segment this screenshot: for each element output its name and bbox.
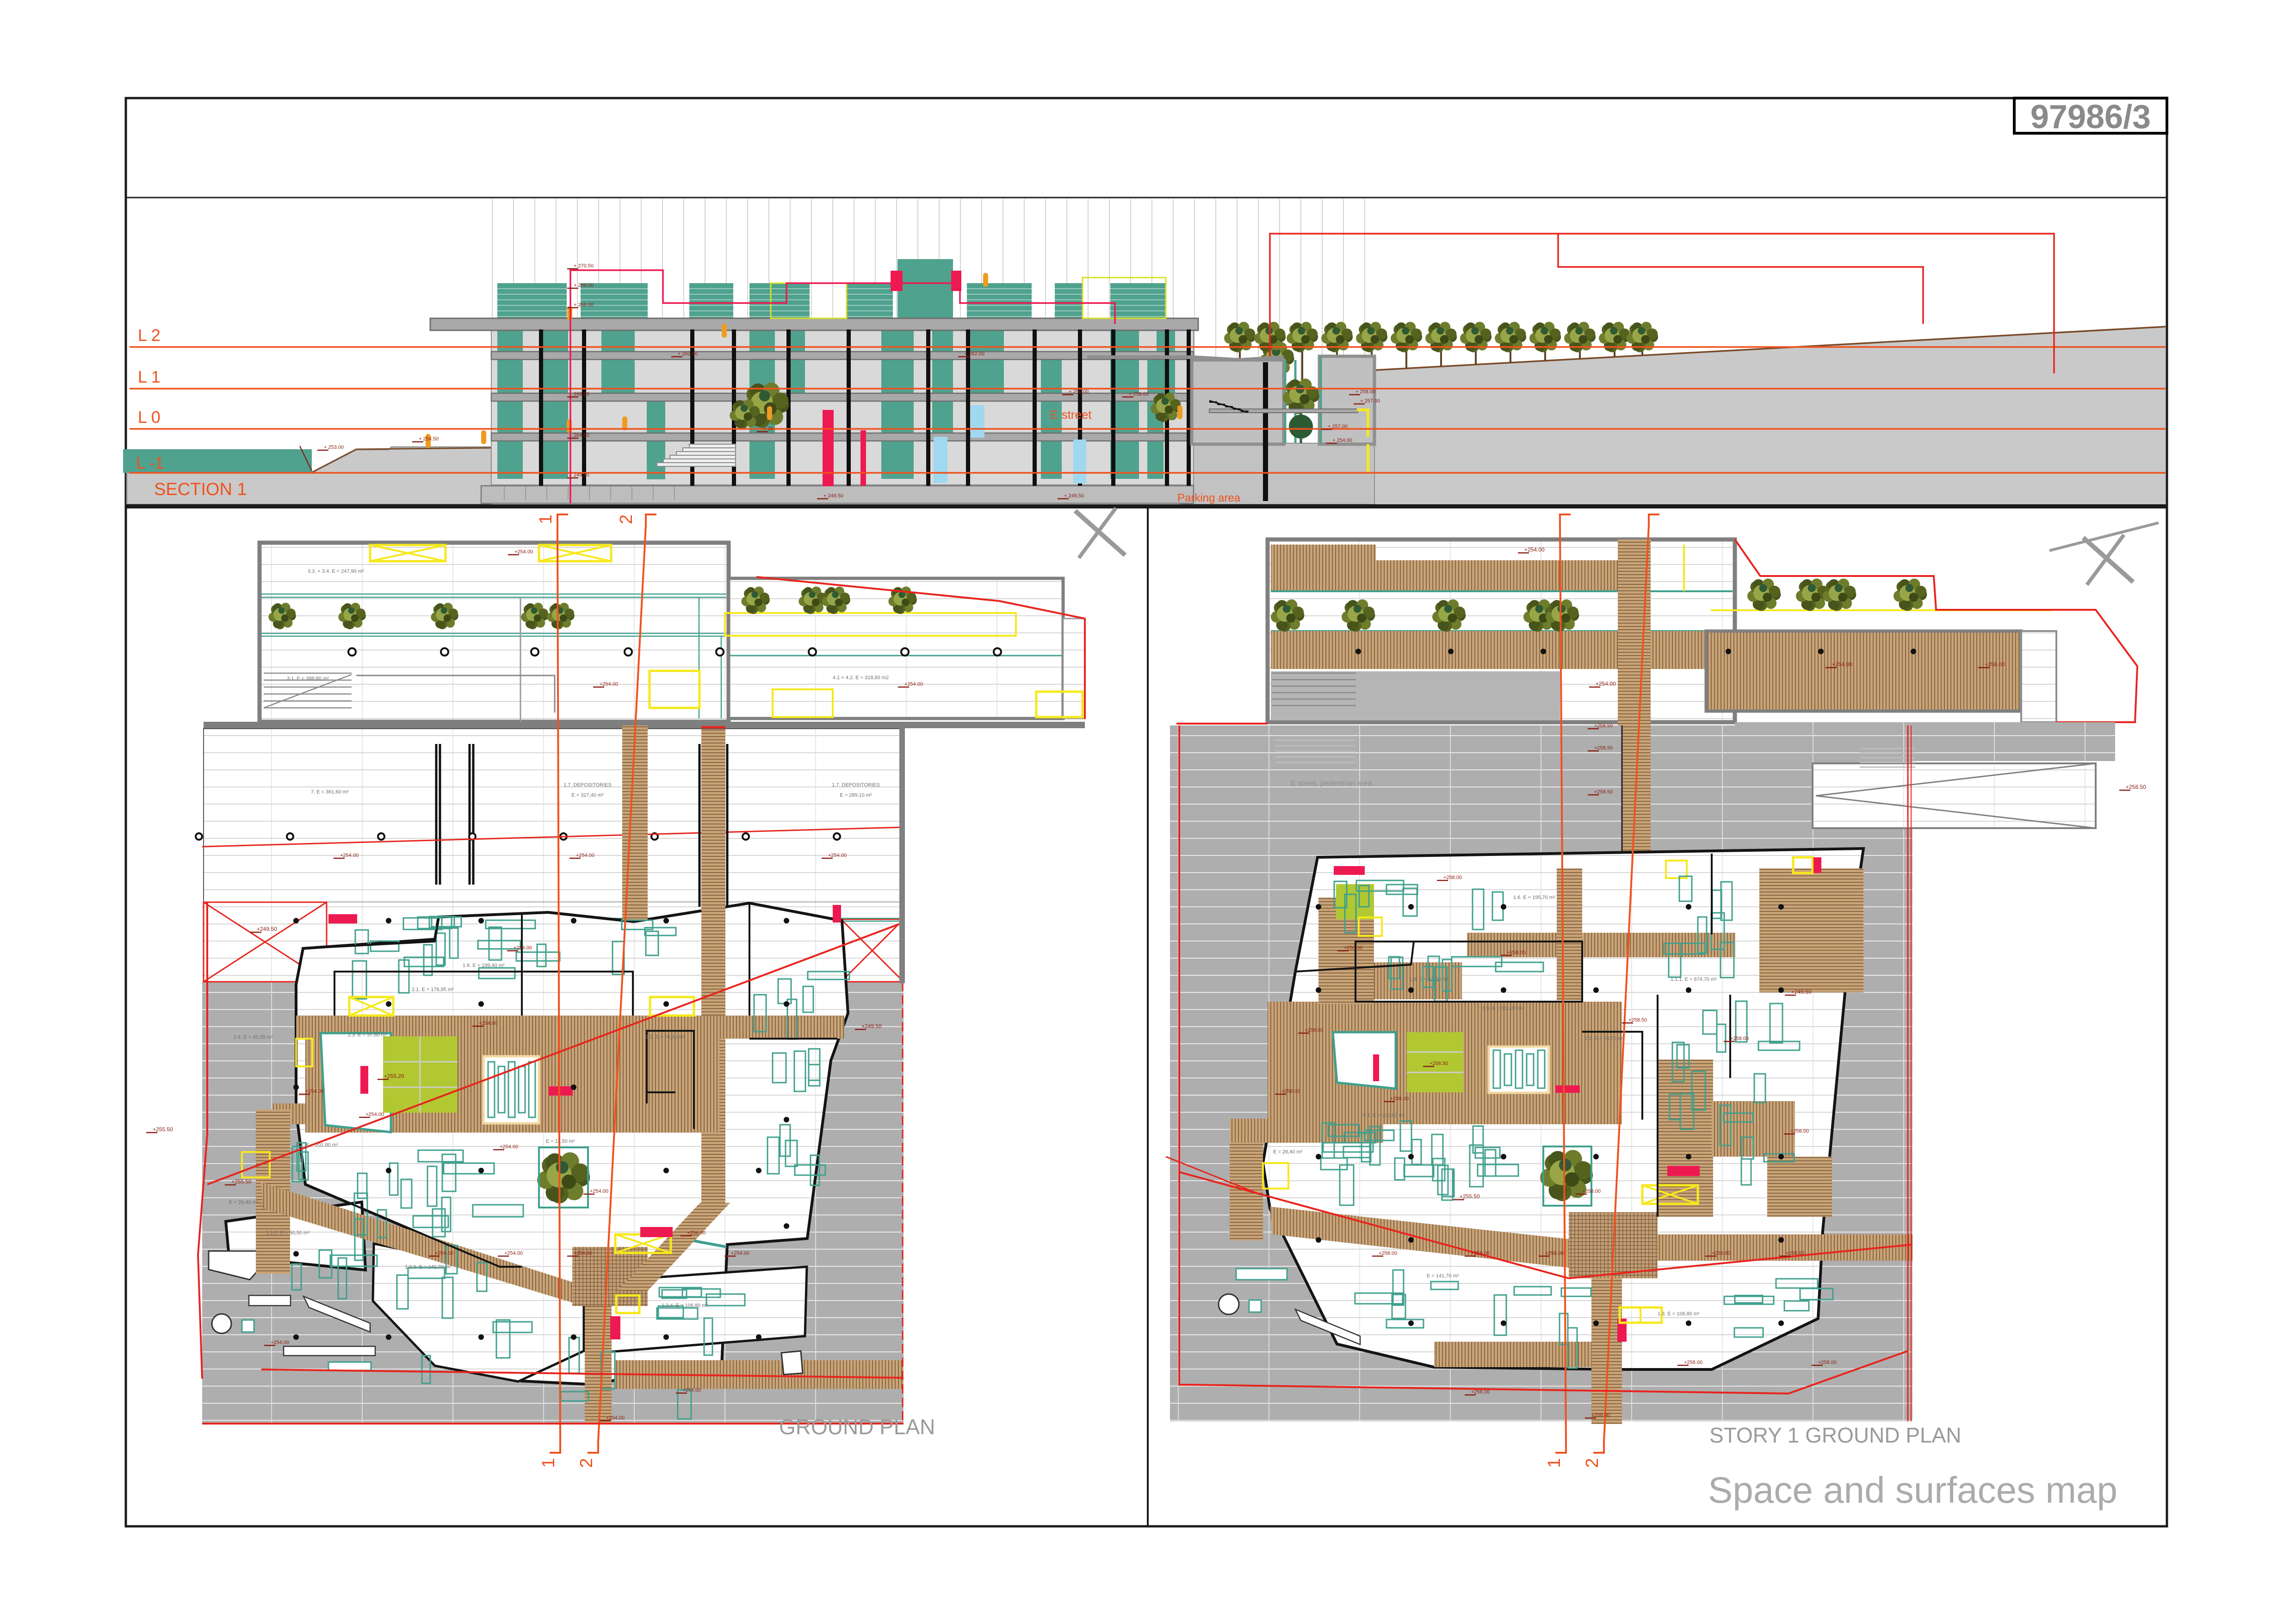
- svg-text:1.6. E = 199,40 m²: 1.6. E = 199,40 m²: [463, 963, 505, 968]
- svg-text:5.2. E = 201.80 m²: 5.2. E = 201.80 m²: [296, 1142, 338, 1148]
- svg-text:+249.50: +249.50: [861, 1023, 882, 1029]
- svg-text:2: 2: [577, 1458, 596, 1468]
- svg-text:1: 1: [536, 514, 556, 524]
- svg-text:+258.00: +258.00: [1591, 1412, 1610, 1418]
- svg-text:3.3. + 3.4. E = 247,90 m²: 3.3. + 3.4. E = 247,90 m²: [308, 569, 364, 574]
- svg-text:+258.00: +258.00: [1684, 1360, 1702, 1365]
- svg-text:1.2.3. E = 141,70 m²: 1.2.3. E = 141,70 m²: [405, 1264, 451, 1270]
- svg-text:+ 262.00: + 262.00: [965, 351, 984, 357]
- svg-text:+258.50: +258.50: [2126, 784, 2146, 790]
- svg-text:+ 268.00: + 268.00: [574, 302, 594, 308]
- svg-text:+258.00: +258.00: [1443, 875, 1462, 880]
- svg-text:+258.00: +258.00: [1582, 1189, 1601, 1194]
- svg-text:1.6. E = 195,70 m²: 1.6. E = 195,70 m²: [1513, 895, 1555, 900]
- svg-text:+254.00: +254.00: [606, 1415, 625, 1421]
- svg-text:E = 289,10 m²: E = 289,10 m²: [840, 793, 872, 798]
- svg-text:1.9. E = 57,60 m²: 1.9. E = 57,60 m²: [1409, 977, 1448, 982]
- svg-text:+258.00: +258.00: [1790, 1128, 1809, 1134]
- svg-text:+254.00: +254.00: [340, 853, 359, 858]
- svg-text:+255.50: +255.50: [231, 1178, 252, 1185]
- svg-text:+ 253.00: + 253.00: [324, 445, 344, 450]
- svg-text:+254.00: +254.00: [365, 1112, 384, 1117]
- svg-text:2.2. E = 76,30 m²: 2.2. E = 76,30 m²: [645, 1035, 685, 1040]
- svg-text:+258.00: +258.00: [1712, 1251, 1730, 1256]
- svg-text:1.7. DEPOSITORIES: 1.7. DEPOSITORIES: [832, 782, 880, 788]
- svg-text:7. E = 361,60 m²: 7. E = 361,60 m²: [311, 789, 349, 795]
- svg-text:1.3. E = 106,80 m²: 1.3. E = 106,80 m²: [1658, 1311, 1700, 1317]
- svg-text:+258.00: +258.00: [1507, 950, 1526, 955]
- svg-text:+254.00: +254.00: [504, 1251, 523, 1256]
- svg-text:5.3. E = 201.80 m²: 5.3. E = 201.80 m²: [1363, 1113, 1405, 1118]
- svg-text:+258.00: +258.00: [1730, 1036, 1749, 1041]
- svg-text:2.1. E = 176,95 m²: 2.1. E = 176,95 m²: [412, 987, 454, 992]
- svg-text:+ 262.00: + 262.00: [678, 351, 698, 357]
- svg-text:+258.00: +258.00: [1379, 1251, 1397, 1256]
- svg-text:L 2: L 2: [138, 326, 161, 345]
- svg-text:+254.00: +254.00: [500, 1144, 518, 1150]
- svg-text:+249.50: +249.50: [1791, 989, 1812, 995]
- svg-text:1.1.1. E = 674,70 m²: 1.1.1. E = 674,70 m²: [1671, 977, 1717, 982]
- svg-text:+255.50: +255.50: [1460, 1193, 1480, 1200]
- svg-text:1.7. DEPOSITORIES: 1.7. DEPOSITORIES: [563, 782, 612, 788]
- svg-text:+258.00: +258.00: [1471, 1389, 1490, 1395]
- svg-text:SECTION 1: SECTION 1: [154, 480, 247, 499]
- svg-text:+258.50: +258.50: [1594, 745, 1613, 751]
- svg-text:+254.00: +254.00: [1832, 661, 1852, 668]
- svg-text:Parking area: Parking area: [1177, 492, 1241, 504]
- svg-text:+254.00: +254.00: [271, 1340, 289, 1345]
- svg-text:+254.00: +254.00: [682, 1388, 701, 1393]
- svg-text:1.9. E = 111,40 m²: 1.9. E = 111,40 m²: [1482, 1006, 1524, 1011]
- svg-text:+254.00: +254.00: [574, 1251, 592, 1256]
- svg-text:+254.00: +254.00: [479, 1021, 497, 1026]
- svg-text:E = 28,40 m²: E = 28,40 m²: [229, 1200, 259, 1205]
- svg-text:+254.00: +254.00: [1596, 681, 1616, 687]
- svg-text:+258.00: +258.00: [1305, 1028, 1323, 1033]
- svg-text:+ 257.00: + 257.00: [1360, 398, 1380, 404]
- svg-text:+258.50: +258.50: [1594, 789, 1613, 795]
- svg-text:97986/3: 97986/3: [2030, 99, 2151, 136]
- svg-text:+254.00: +254.00: [828, 853, 847, 858]
- svg-text:+255.50: +255.50: [153, 1126, 173, 1133]
- svg-text:+258.00: +258.00: [1471, 1251, 1490, 1256]
- svg-text:+258.00: +258.00: [1281, 1089, 1300, 1094]
- svg-text:249.50: 249.50: [574, 472, 589, 478]
- svg-text:+254.00: +254.00: [305, 1089, 324, 1094]
- svg-text:+258.50: +258.50: [1430, 1061, 1448, 1066]
- svg-text:+254.00: +254.00: [514, 549, 533, 555]
- svg-text:+ 270.50: + 270.50: [574, 263, 594, 269]
- svg-text:STORY 1 GROUND PLAN: STORY 1 GROUND PLAN: [1709, 1423, 1962, 1447]
- svg-text:E street, pedestrian area: E street, pedestrian area: [1291, 780, 1372, 787]
- svg-text:2.4. E = 42,35 m²: 2.4. E = 42,35 m²: [234, 1035, 273, 1040]
- svg-text:+258.00: +258.00: [1545, 1251, 1564, 1256]
- svg-text:+258.00: +258.00: [1786, 1251, 1804, 1256]
- svg-text:E = 28,40 m²: E = 28,40 m²: [1273, 1149, 1303, 1155]
- svg-text:E street: E street: [1050, 408, 1092, 421]
- svg-text:E = 11,50 m²: E = 11,50 m²: [546, 1139, 575, 1144]
- svg-text:+ 254.00: + 254.00: [1332, 438, 1352, 443]
- svg-text:+ 25: + 25: [763, 426, 774, 432]
- svg-text:+ 258.00: + 258.00: [1129, 391, 1149, 397]
- svg-text:GROUND PLAN: GROUND PLAN: [779, 1415, 935, 1439]
- svg-text:1: 1: [1545, 1458, 1564, 1468]
- svg-text:1: 1: [539, 1458, 558, 1468]
- svg-text:+254.00: +254.00: [1524, 546, 1545, 553]
- svg-text:L -1: L -1: [136, 453, 164, 472]
- svg-text:+ 257.00: + 257.00: [1328, 424, 1348, 429]
- svg-text:3.1. E = 388,80 m²: 3.1. E = 388,80 m²: [287, 676, 329, 681]
- svg-text:Space and surfaces map: Space and surfaces map: [1708, 1469, 2117, 1511]
- svg-text:2.2. E = 53,70 m²: 2.2. E = 53,70 m²: [1584, 1036, 1624, 1041]
- svg-text:+258.50: +258.50: [1628, 1017, 1647, 1023]
- svg-text:+258.00: +258.00: [1344, 945, 1362, 951]
- svg-text:+254.00: +254.00: [590, 1189, 608, 1194]
- svg-text:+ 249.50: + 249.50: [1064, 493, 1084, 499]
- svg-text:+258.00: +258.00: [1985, 661, 2005, 668]
- svg-text:+255.20: +255.20: [384, 1073, 404, 1079]
- svg-text:2.3. E = 37,80 m²: 2.3. E = 37,80 m²: [348, 1032, 387, 1038]
- svg-text:+ 269.00: + 269.00: [574, 283, 594, 288]
- svg-text:+ 258.00: + 258.00: [1069, 389, 1089, 395]
- svg-text:+258.00: +258.00: [1390, 1096, 1409, 1102]
- svg-text:E = 327,40 m²: E = 327,40 m²: [571, 793, 604, 798]
- svg-text:E = 141,70 m²: E = 141,70 m²: [1427, 1273, 1459, 1279]
- svg-text:+254.00: +254.00: [435, 1251, 453, 1256]
- svg-text:+254.00: +254.00: [576, 853, 594, 858]
- svg-text:+254.00: +254.00: [731, 1251, 749, 1256]
- svg-text:+258.00: +258.00: [1818, 1360, 1837, 1365]
- svg-text:+258.50: +258.50: [1594, 723, 1613, 729]
- svg-text:+254.00: +254.00: [904, 681, 923, 687]
- svg-text:L 1: L 1: [138, 367, 161, 386]
- svg-text:+249.50: +249.50: [257, 926, 277, 932]
- svg-text:+ 258.00: + 258.00: [1355, 389, 1375, 395]
- svg-text:4.1 + 4.2. E = 318,60 m2: 4.1 + 4.2. E = 318,60 m2: [833, 675, 889, 681]
- svg-text:1.2.4. E = 106,80 m²: 1.2.4. E = 106,80 m²: [662, 1303, 708, 1308]
- svg-text:+254.00: +254.00: [600, 681, 618, 687]
- svg-text:268.00: 268.00: [574, 391, 589, 397]
- svg-text:+254.00: +254.00: [514, 945, 532, 951]
- svg-text:264.00: 264.00: [574, 433, 589, 438]
- svg-text:+ 249.50: + 249.50: [823, 493, 843, 499]
- svg-text:2: 2: [617, 514, 636, 524]
- svg-text:2: 2: [1583, 1458, 1602, 1468]
- svg-text:+254.00: +254.00: [687, 1230, 706, 1236]
- svg-text:1.2.2. E = 50,50 m²: 1.2.2. E = 50,50 m²: [266, 1230, 309, 1236]
- svg-text:+ 254.50: + 254.50: [419, 436, 439, 442]
- svg-text:L 0: L 0: [138, 408, 161, 427]
